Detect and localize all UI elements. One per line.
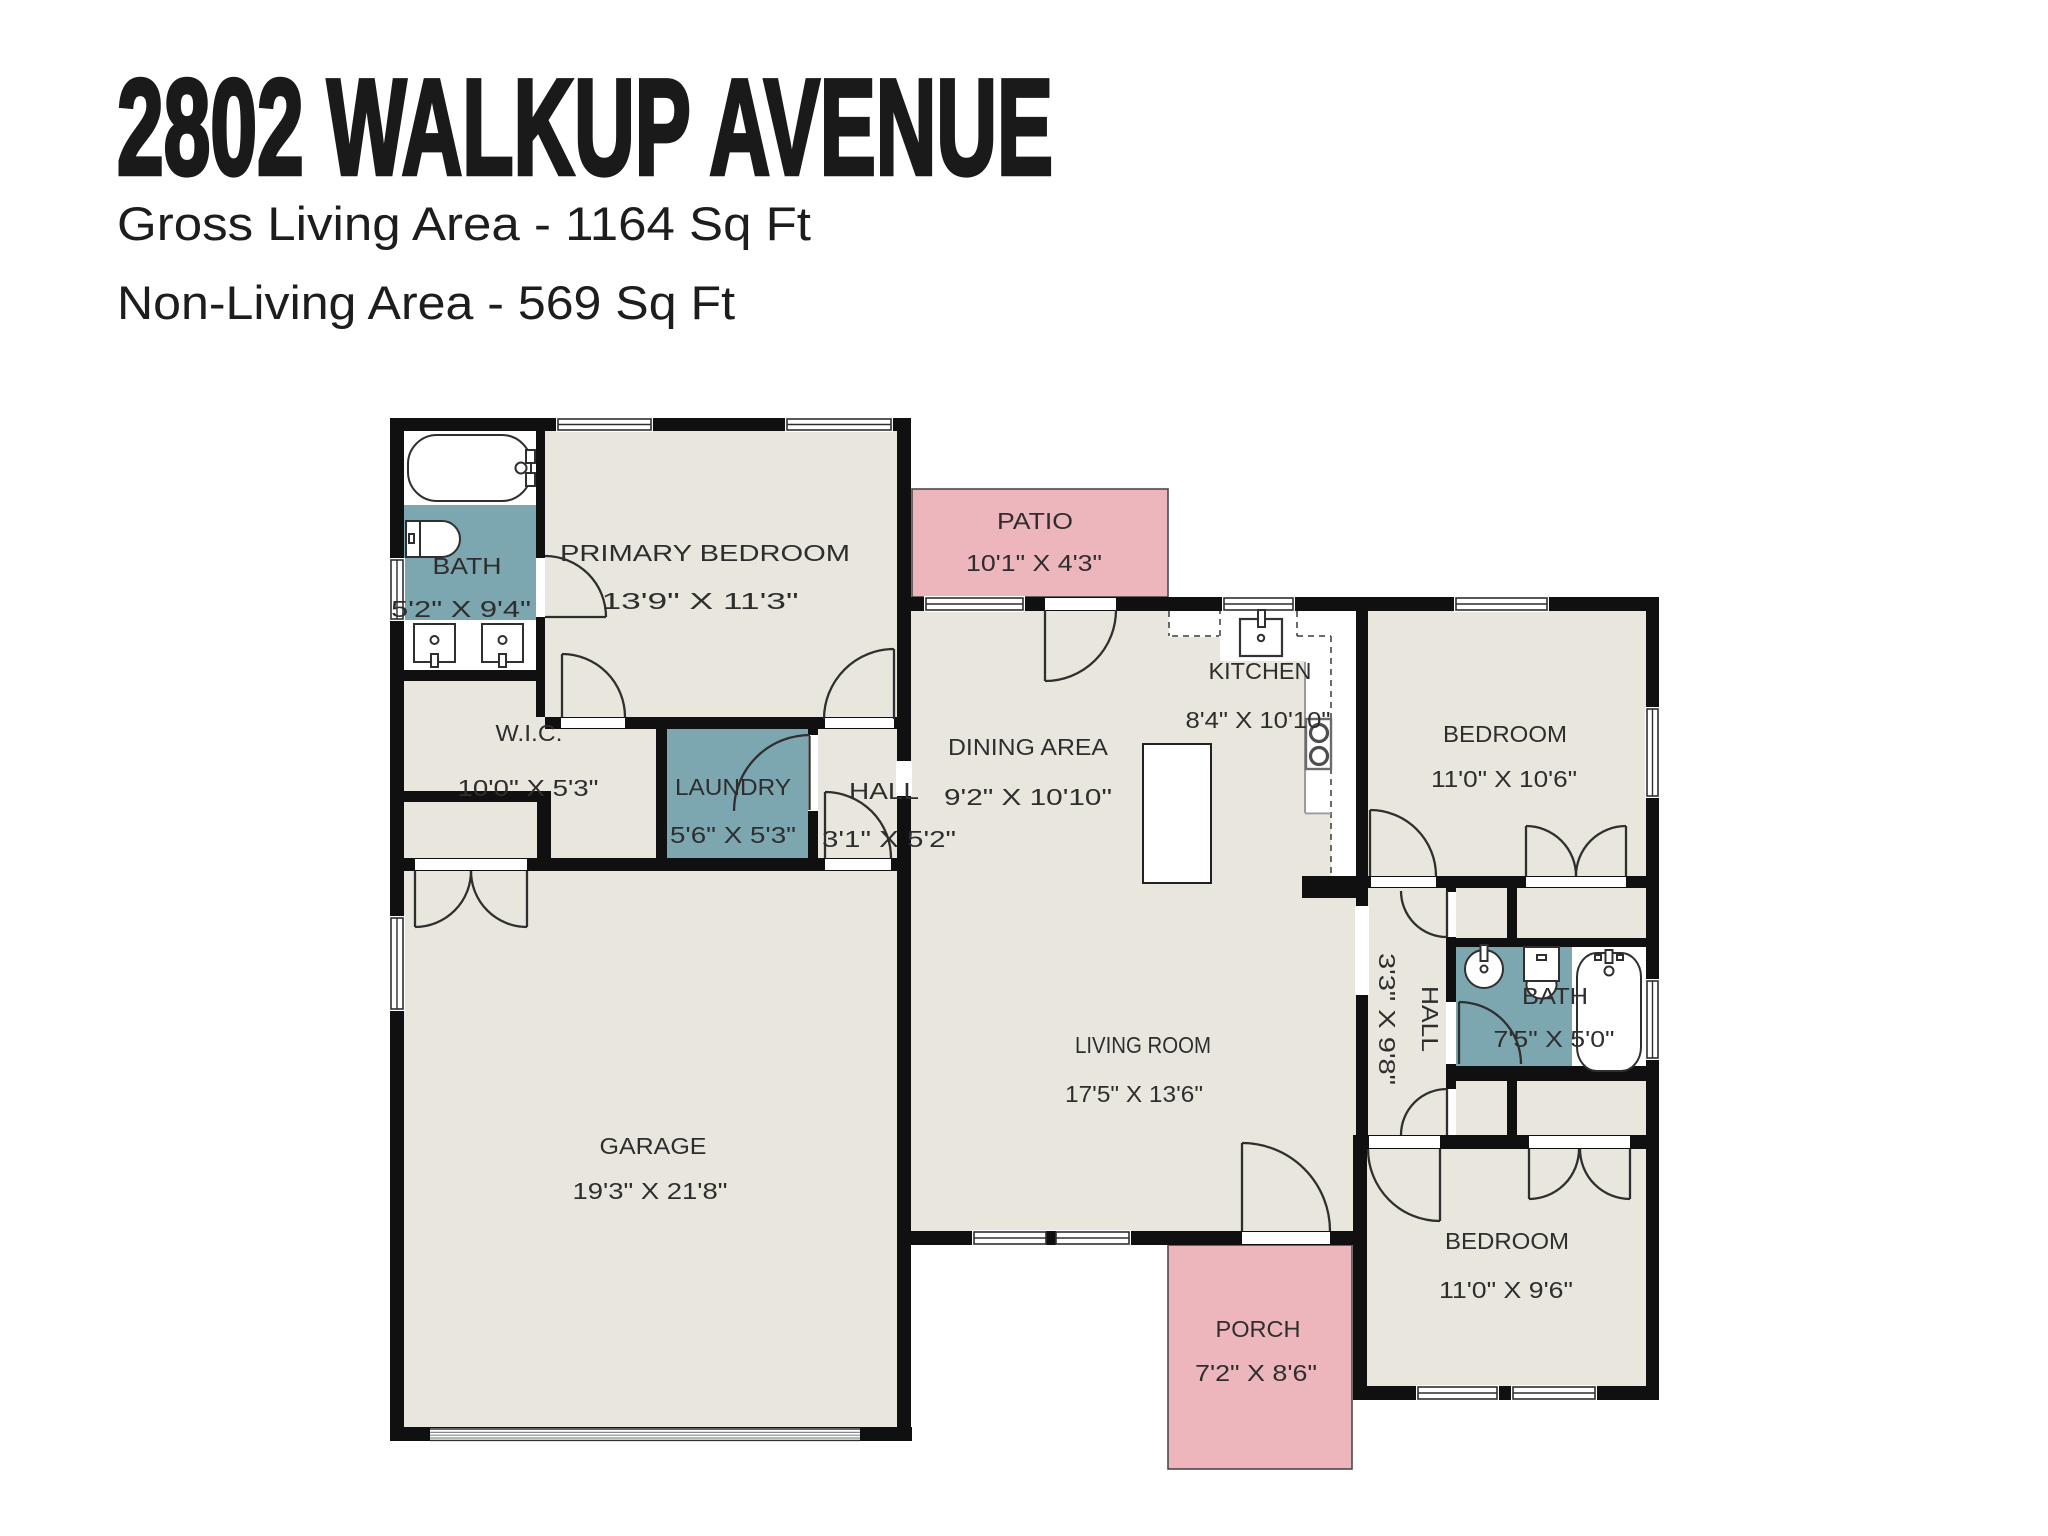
svg-text:13'9" X 11'3": 13'9" X 11'3" bbox=[602, 588, 799, 614]
svg-text:7'5" X 5'0": 7'5" X 5'0" bbox=[1494, 1026, 1615, 1052]
svg-text:LIVING ROOM: LIVING ROOM bbox=[1075, 1032, 1211, 1058]
svg-text:PRIMARY BEDROOM: PRIMARY BEDROOM bbox=[560, 540, 850, 566]
svg-text:19'3" X 21'8": 19'3" X 21'8" bbox=[573, 1178, 728, 1204]
svg-text:GARAGE: GARAGE bbox=[600, 1133, 707, 1159]
svg-text:W.I.C.: W.I.C. bbox=[496, 720, 563, 746]
svg-text:3'1" X 5'2": 3'1" X 5'2" bbox=[822, 826, 956, 852]
svg-text:BATH: BATH bbox=[433, 553, 502, 579]
svg-text:7'2" X 8'6": 7'2" X 8'6" bbox=[1195, 1360, 1317, 1386]
svg-text:8'4" X 10'10": 8'4" X 10'10" bbox=[1186, 707, 1331, 733]
svg-text:5'6" X 5'3": 5'6" X 5'3" bbox=[670, 822, 796, 848]
svg-text:3'3" X 9'8": 3'3" X 9'8" bbox=[1374, 953, 1400, 1085]
svg-text:PORCH: PORCH bbox=[1216, 1316, 1301, 1342]
svg-text:10'0" X 5'3": 10'0" X 5'3" bbox=[458, 775, 599, 801]
svg-text:PATIO: PATIO bbox=[997, 508, 1073, 534]
svg-text:11'0" X 10'6": 11'0" X 10'6" bbox=[1431, 766, 1577, 792]
svg-text:DINING AREA: DINING AREA bbox=[948, 734, 1109, 760]
svg-text:11'0" X 9'6": 11'0" X 9'6" bbox=[1439, 1277, 1573, 1303]
svg-text:2802 WALKUP AVENUE: 2802 WALKUP AVENUE bbox=[117, 51, 1053, 203]
svg-text:HALL: HALL bbox=[1417, 986, 1443, 1052]
svg-text:5'2" X 9'4": 5'2" X 9'4" bbox=[391, 596, 531, 622]
svg-text:BATH: BATH bbox=[1522, 983, 1588, 1009]
svg-text:KITCHEN: KITCHEN bbox=[1209, 658, 1312, 684]
svg-text:9'2" X 10'10": 9'2" X 10'10" bbox=[944, 784, 1112, 810]
svg-text:Gross Living Area - 1164 Sq Ft: Gross Living Area - 1164 Sq Ft bbox=[117, 197, 811, 250]
svg-text:Non-Living Area - 569 Sq Ft: Non-Living Area - 569 Sq Ft bbox=[117, 276, 735, 329]
svg-text:LAUNDRY: LAUNDRY bbox=[675, 774, 791, 800]
svg-text:10'1" X 4'3": 10'1" X 4'3" bbox=[966, 550, 1102, 576]
svg-text:HALL: HALL bbox=[849, 778, 919, 804]
svg-text:BEDROOM: BEDROOM bbox=[1443, 721, 1567, 747]
svg-text:17'5" X 13'6": 17'5" X 13'6" bbox=[1065, 1081, 1203, 1107]
svg-text:BEDROOM: BEDROOM bbox=[1445, 1228, 1569, 1254]
